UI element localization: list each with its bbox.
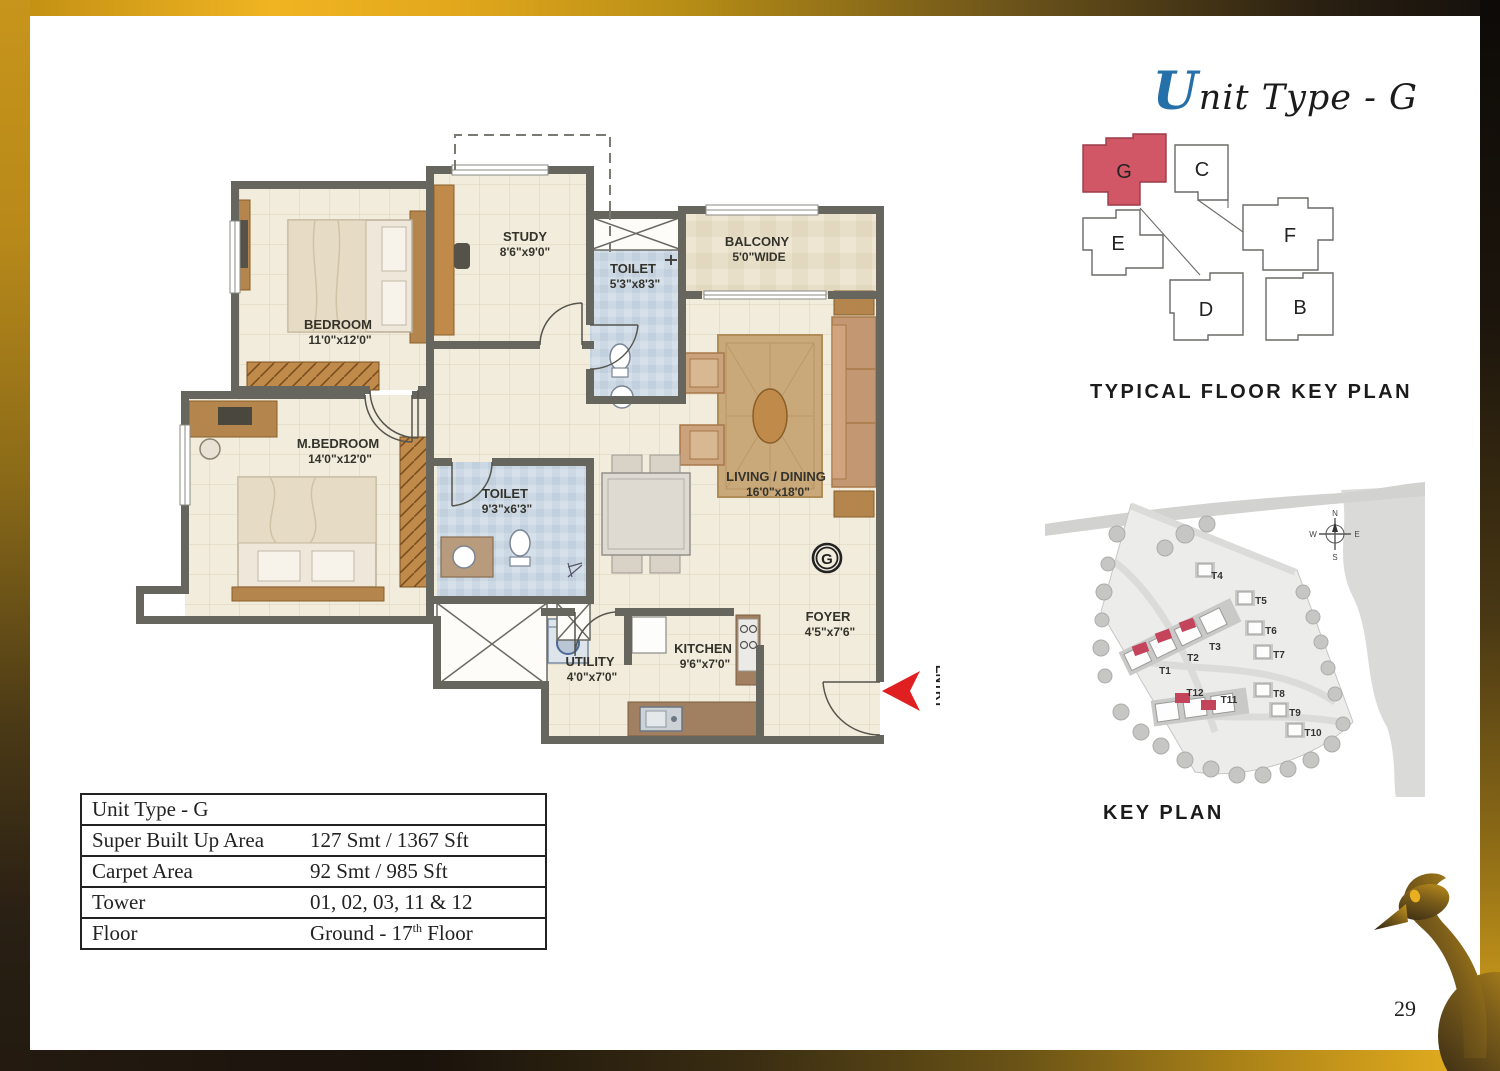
room-label-bedroom: BEDROOM <box>304 317 372 332</box>
floor-label: Floor <box>82 921 310 946</box>
typical-floor-key-plan-caption: TYPICAL FLOOR KEY PLAN <box>1090 381 1412 404</box>
room-dims-toilet1: 5'3"x8'3" <box>610 277 660 291</box>
floorplan-drawing: BEDROOM 11'0"x12'0" STUDY 8'6"x9'0" TOIL… <box>120 125 940 790</box>
table-row-super-area: Super Built Up Area 127 Smt / 1367 Sft <box>82 824 545 855</box>
page-title-initial: U <box>1152 61 1198 122</box>
compass-w: W <box>1309 530 1317 539</box>
site-key-plan-caption: KEY PLAN <box>1103 802 1224 825</box>
room-dims-study: 8'6"x9'0" <box>500 245 550 259</box>
table-row-unit-type: Unit Type - G <box>82 795 545 824</box>
room-label-living: LIVING / DINING <box>726 469 826 484</box>
swan-logo-icon <box>1368 868 1500 1071</box>
compass-e: E <box>1354 530 1359 539</box>
tower-label-t4: T4 <box>1211 571 1223 582</box>
typical-floor-key-plan: G C E F D B <box>1078 130 1360 348</box>
tower-label-t9: T9 <box>1289 708 1301 719</box>
tower-label-t8: T8 <box>1273 689 1285 700</box>
unit-letter-d: D <box>1199 299 1213 321</box>
dining-furniture <box>602 455 690 573</box>
tower-highlight-t11 <box>1201 700 1216 710</box>
table-row-floor: Floor Ground - 17th Floor <box>82 917 545 948</box>
tower-label-t6: T6 <box>1265 626 1277 637</box>
super-area-value: 127 Smt / 1367 Sft <box>310 828 545 853</box>
page-title-rest: nit Type - G <box>1199 78 1418 118</box>
floor-value: Ground - 17th Floor <box>310 921 545 946</box>
room-dims-kitchen: 9'6"x7'0" <box>680 657 730 671</box>
tower-label-t12: T12 <box>1186 688 1204 699</box>
room-dims-balcony: 5'0"WIDE <box>732 250 785 264</box>
tower-label-t10: T10 <box>1304 728 1322 739</box>
page-title: Unit Type - G <box>1152 78 1418 118</box>
unit-marker: G <box>813 544 841 572</box>
tower-label-t1: T1 <box>1159 666 1171 677</box>
frame-bottom <box>0 1050 1500 1071</box>
room-dims-toilet2: 9'3"x6'3" <box>482 502 532 516</box>
unit-letter-c: C <box>1195 159 1209 181</box>
brochure-page: Unit Type - G <box>0 0 1500 1071</box>
tower-value: 01, 02, 03, 11 & 12 <box>310 890 545 915</box>
room-label-study: STUDY <box>503 229 547 244</box>
room-label-foyer: FOYER <box>806 609 851 624</box>
room-dims-mbedroom: 14'0"x12'0" <box>308 452 372 466</box>
room-dims-living: 16'0"x18'0" <box>746 485 810 499</box>
tower-label-t11: T11 <box>1221 695 1238 706</box>
unit-letter-g: G <box>1116 161 1132 183</box>
super-area-label: Super Built Up Area <box>82 828 310 853</box>
carpet-area-value: 92 Smt / 985 Sft <box>310 859 545 884</box>
compass-s: S <box>1332 553 1337 562</box>
room-label-utility: UTILITY <box>565 654 614 669</box>
unit-letter-e: E <box>1111 233 1124 255</box>
unit-marker-letter: G <box>821 551 833 568</box>
entry-label: ENTRY <box>933 665 940 709</box>
entry-group: ENTRY <box>882 665 940 711</box>
room-label-toilet1: TOILET <box>610 261 656 276</box>
table-row-carpet-area: Carpet Area 92 Smt / 985 Sft <box>82 855 545 886</box>
room-dims-foyer: 4'5"x7'6" <box>805 625 855 639</box>
tower-label-t2: T2 <box>1187 653 1199 664</box>
carpet-area-label: Carpet Area <box>82 859 310 884</box>
tower-label: Tower <box>82 890 310 915</box>
floor-value-suffix: Floor <box>422 921 473 945</box>
room-label-toilet2: TOILET <box>482 486 528 501</box>
tower-label-t3: T3 <box>1209 642 1221 653</box>
room-label-kitchen: KITCHEN <box>674 641 732 656</box>
room-label-balcony: BALCONY <box>725 234 790 249</box>
unit-letter-b: B <box>1293 297 1306 319</box>
site-key-plan: T1 T2 T3 T4 T5 T6 T7 T8 T9 T10 T11 T12 N… <box>1045 472 1425 797</box>
table-row-tower: Tower 01, 02, 03, 11 & 12 <box>82 886 545 917</box>
floor-value-prefix: Ground - 17 <box>310 921 413 945</box>
room-dims-utility: 4'0"x7'0" <box>567 670 617 684</box>
entry-arrow-icon <box>882 671 920 711</box>
unit-letter-f: F <box>1284 225 1296 247</box>
unit-type-label: Unit Type - G <box>82 797 310 822</box>
frame-left <box>0 0 30 1071</box>
tower-label-t7: T7 <box>1273 650 1285 661</box>
room-dims-bedroom: 11'0"x12'0" <box>308 333 371 347</box>
unit-details-table: Unit Type - G Super Built Up Area 127 Sm… <box>80 793 547 950</box>
floor-value-sup: th <box>413 921 422 935</box>
tower-label-t5: T5 <box>1255 596 1267 607</box>
frame-top <box>0 0 1500 16</box>
compass-n: N <box>1332 509 1338 518</box>
room-label-mbedroom: M.BEDROOM <box>297 436 379 451</box>
